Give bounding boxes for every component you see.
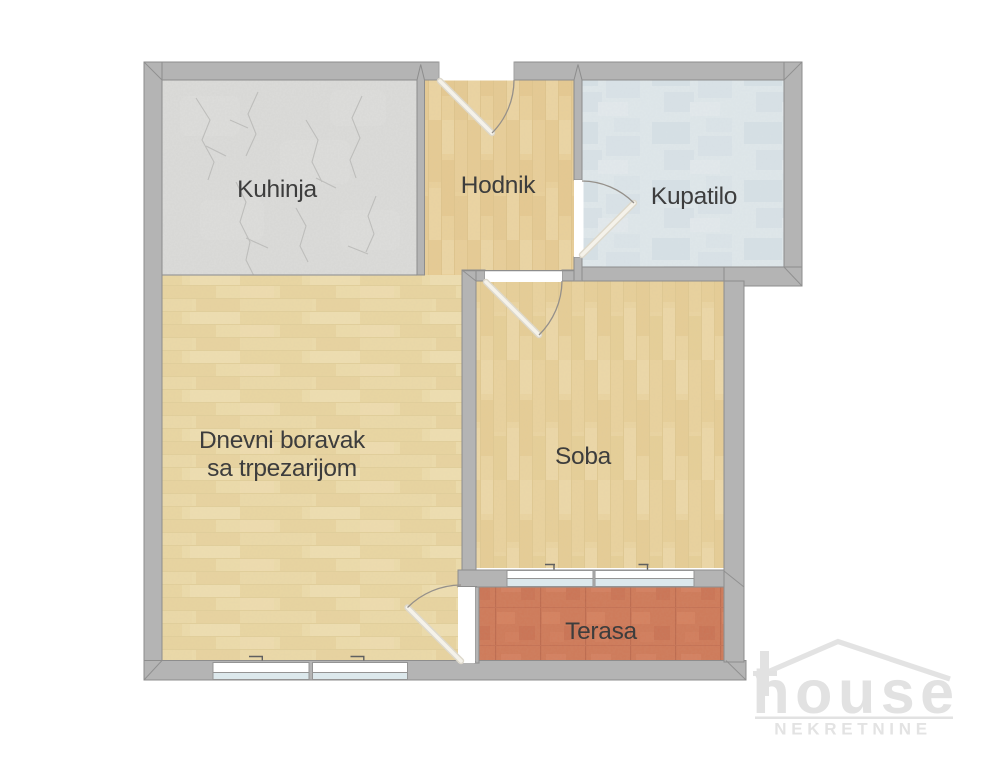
svg-text:Dnevni boravak: Dnevni boravak <box>199 427 366 454</box>
svg-text:Hodnik: Hodnik <box>461 172 537 199</box>
svg-text:Kuhinja: Kuhinja <box>237 176 317 203</box>
svg-text:Terasa: Terasa <box>565 618 637 645</box>
svg-text:house: house <box>752 658 959 726</box>
svg-text:Soba: Soba <box>555 443 612 470</box>
svg-text:sa trpezarijom: sa trpezarijom <box>207 455 357 482</box>
svg-text:NEKRETNINE: NEKRETNINE <box>774 720 932 739</box>
svg-text:Kupatilo: Kupatilo <box>651 183 737 210</box>
